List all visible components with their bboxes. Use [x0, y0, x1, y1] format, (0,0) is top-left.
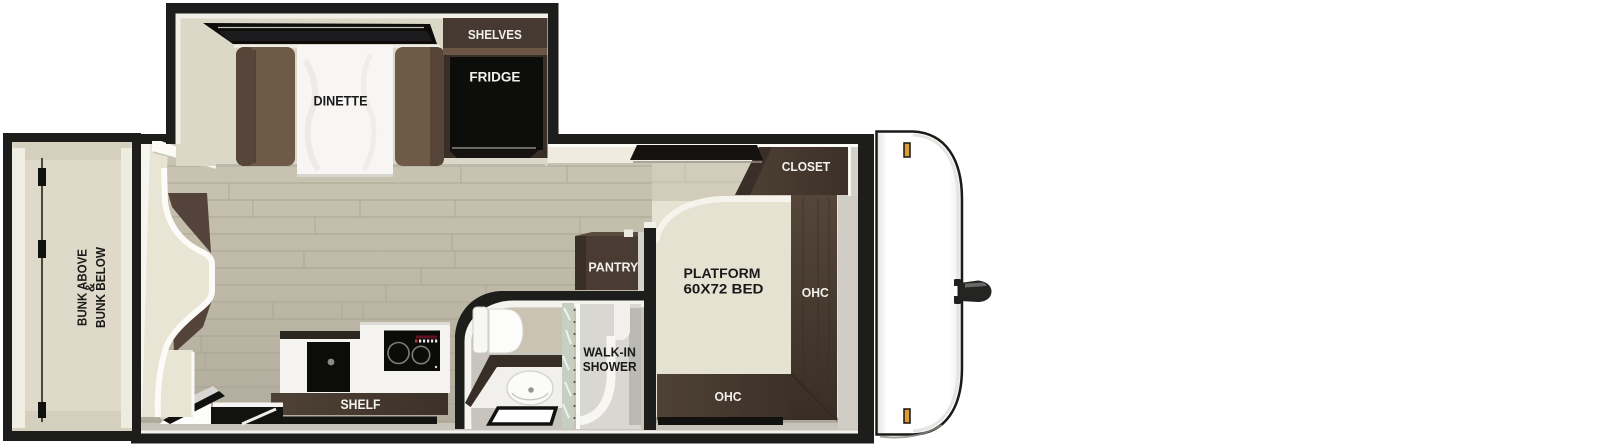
svg-text:DINETTE: DINETTE	[314, 94, 368, 109]
svg-text:FRIDGE: FRIDGE	[469, 69, 520, 85]
svg-text:SHELF: SHELF	[341, 397, 381, 412]
svg-text:BUNK BELOW: BUNK BELOW	[94, 247, 108, 328]
svg-text:PANTRY: PANTRY	[588, 260, 638, 275]
svg-text:CLOSET: CLOSET	[782, 159, 831, 174]
svg-text:SHELVES: SHELVES	[468, 27, 522, 42]
svg-text:PLATFORM: PLATFORM	[684, 266, 761, 281]
svg-text:WALK-IN: WALK-IN	[583, 346, 636, 360]
svg-text:OHC: OHC	[802, 286, 829, 300]
svg-text:60X72 BED: 60X72 BED	[684, 282, 764, 297]
svg-text:SHOWER: SHOWER	[583, 360, 637, 374]
svg-text:OHC: OHC	[715, 390, 742, 404]
